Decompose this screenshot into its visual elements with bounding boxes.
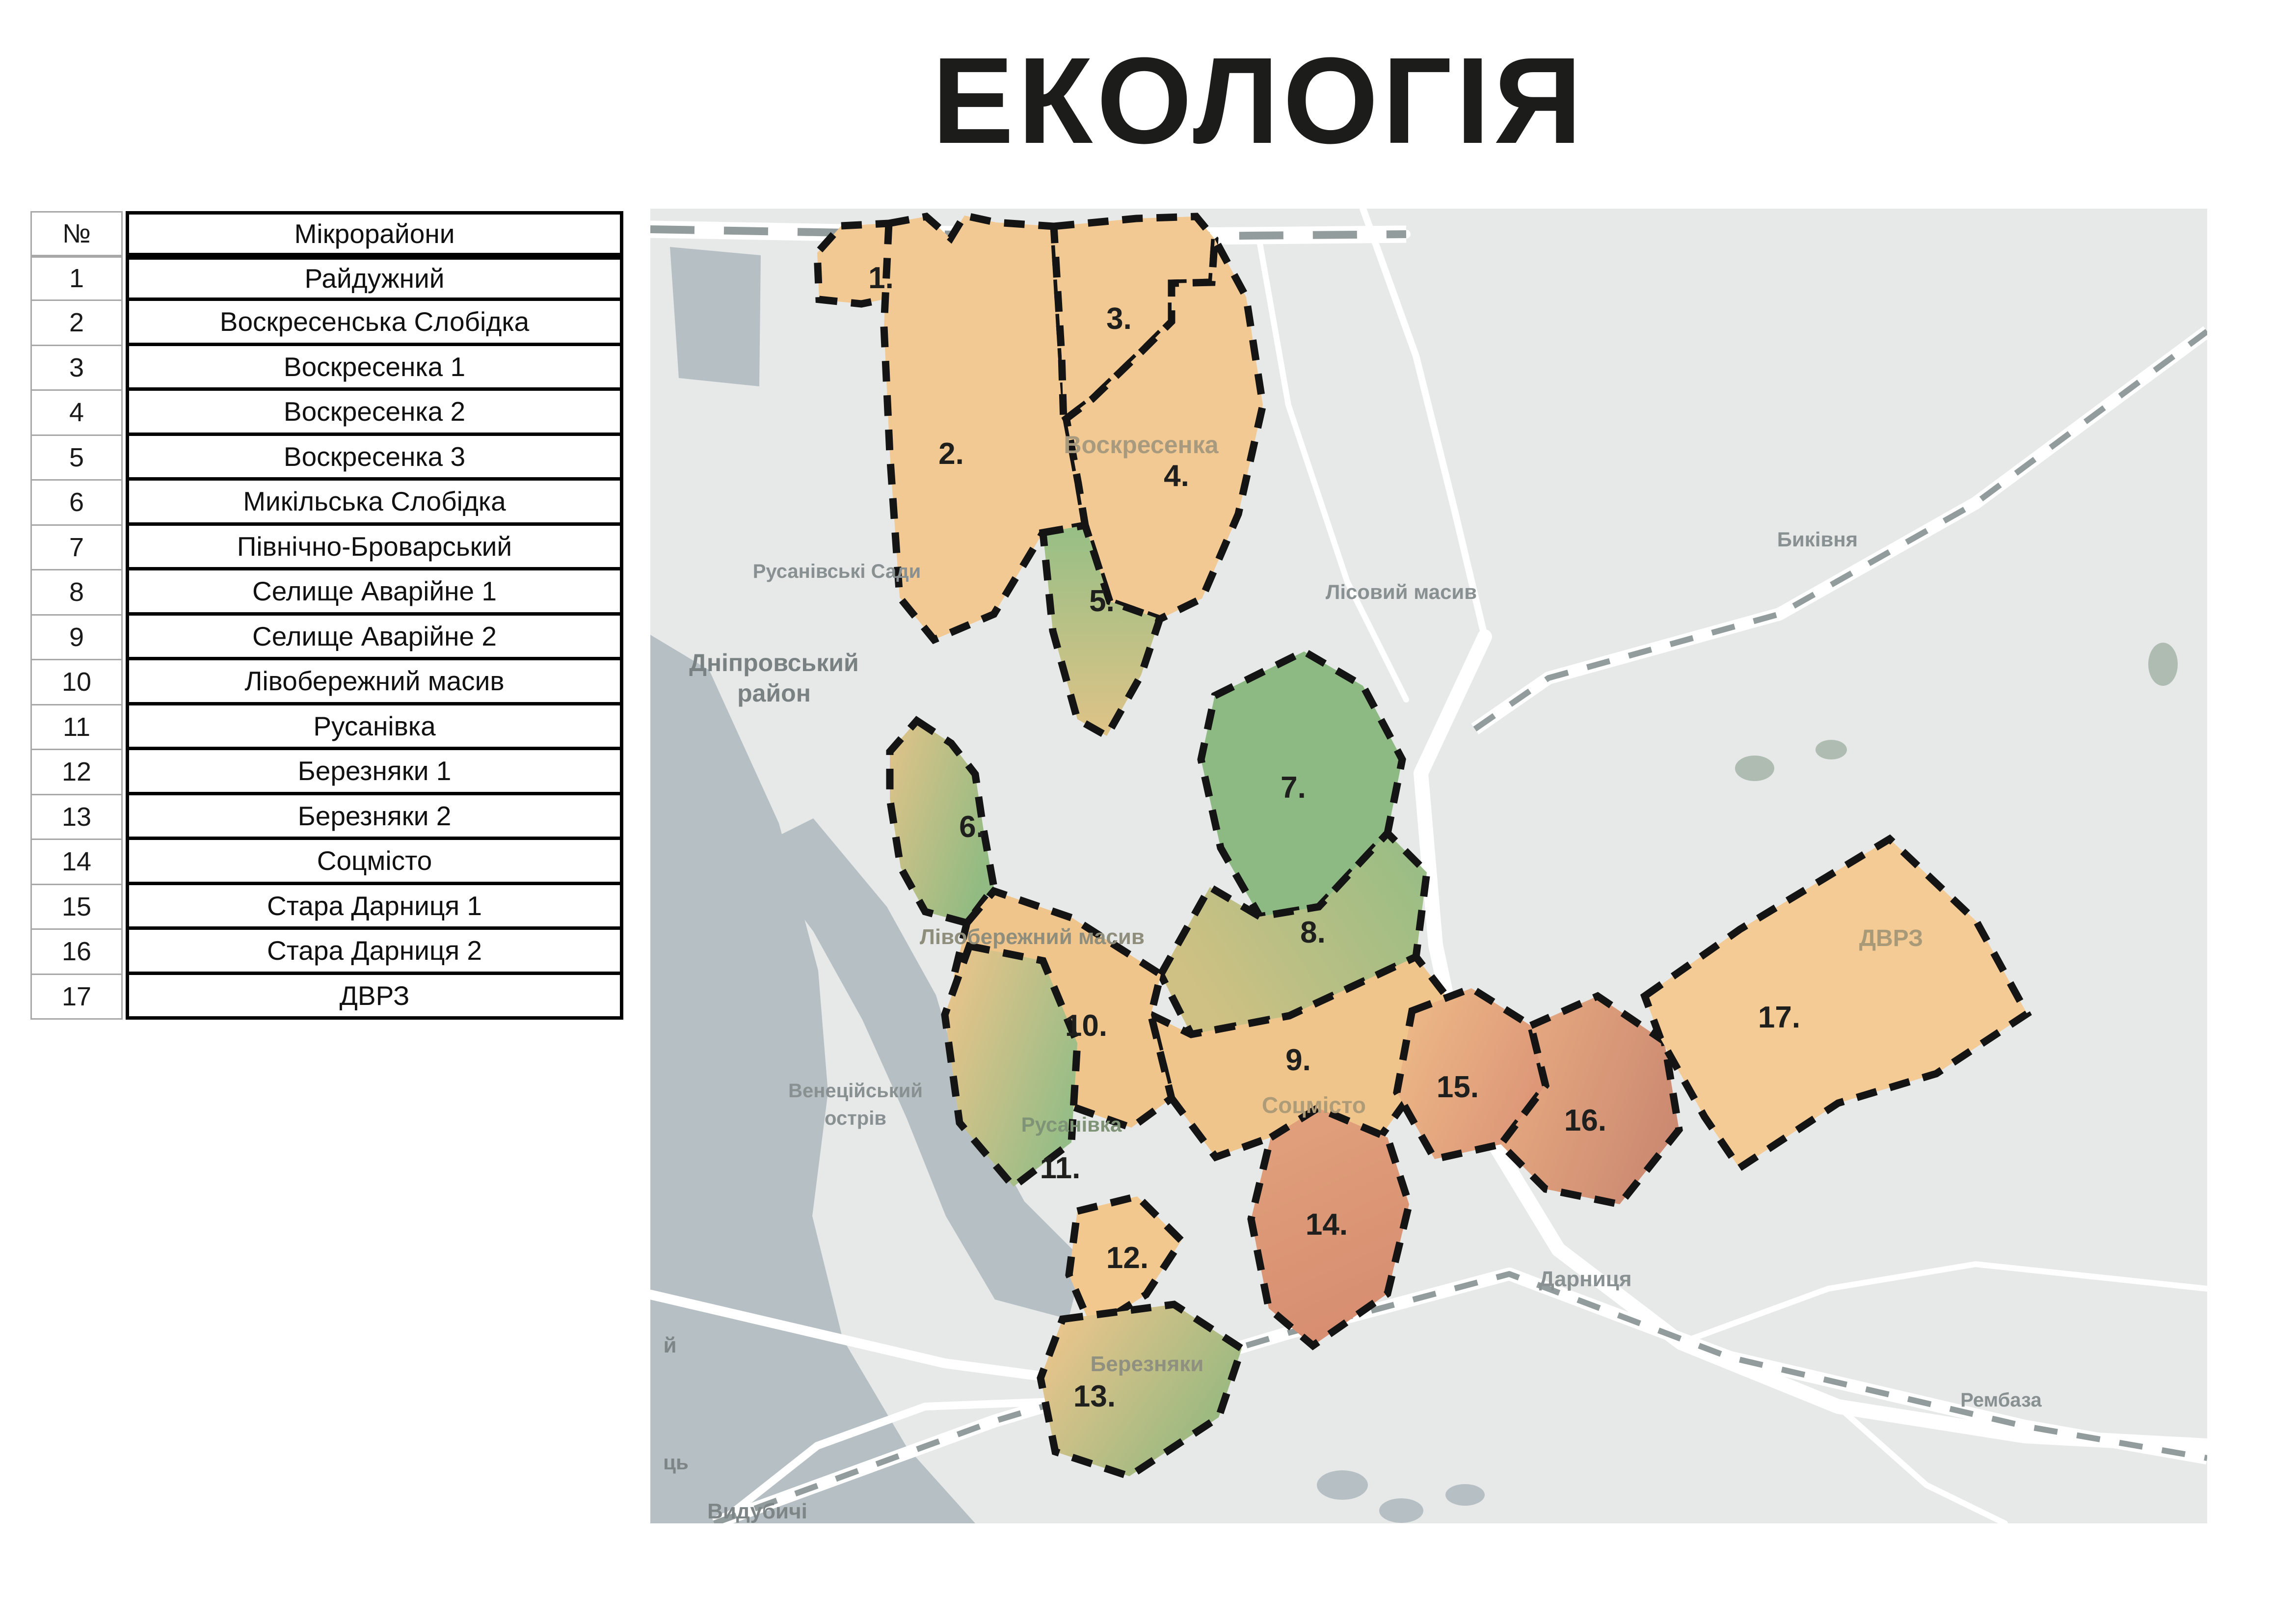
pond [1317,1470,1368,1500]
region-polygon [1645,839,2027,1168]
region-number-label: 9. [1285,1043,1311,1077]
table-row: 14Соцмісто [30,840,623,885]
district-name: Микільська Слобідка [126,477,623,526]
region-number-label: 14. [1306,1208,1348,1242]
map-place-label: Венеційський [788,1080,923,1102]
region-number-label: 3. [1106,302,1132,336]
district-number: 7 [30,524,123,571]
district-number: 15 [30,884,123,930]
map-place-label: Соцмісто [1262,1092,1366,1118]
table-row: 3Воскресенка 1 [30,346,623,391]
map-svg: Русанівські СадиДніпровськийрайонЛісовий… [650,209,2207,1523]
region-number-label: 2. [938,437,964,471]
table-row: 11Русанівка [30,705,623,751]
district-number: 2 [30,299,123,346]
infographic-page: { "title": "ЕКОЛОГІЯ", "table": { "heade… [0,0,2296,1624]
table-row: 1Райдужний [30,256,623,301]
road [1363,209,1485,637]
district-number: 11 [30,704,123,751]
district-name: Березняки 1 [126,747,623,795]
district-name: ДВРЗ [126,972,623,1020]
district-name: Північно-Броварський [126,522,623,571]
map-place-label: Рембаза [1960,1389,2042,1411]
table-rows-container: 1Райдужний2Воскресенська Слобідка3Воскре… [30,256,623,1020]
region-number-label: 6. [959,810,985,844]
map-place-label: Русанівські Сади [753,561,921,582]
table-header-row: № Мікрорайони [30,211,623,256]
map-place-label: Дарниця [1539,1267,1631,1291]
header-number-cell: № [30,211,123,256]
district-name: Воскресенка 3 [126,433,623,481]
table-row: 12Березняки 1 [30,750,623,795]
district-number: 14 [30,839,123,885]
district-number: 1 [30,256,123,301]
district-number: 17 [30,974,123,1020]
district-name: Соцмісто [126,837,623,885]
region-number-label: 12. [1106,1241,1148,1275]
region-number-label: 16. [1564,1104,1606,1137]
table-row: 15Стара Дарниця 1 [30,885,623,930]
park [1735,756,1774,781]
district-name: Воскресенка 1 [126,343,623,391]
map-place-label: район [737,679,811,707]
district-name: Селище Аварійне 1 [126,567,623,616]
region-number-label: 7. [1281,771,1306,805]
map-place-label: Березняки [1091,1352,1204,1376]
district-name: Стара Дарниця 2 [126,926,623,975]
ecology-map: Русанівські СадиДніпровськийрайонЛісовий… [650,209,2207,1523]
district-number: 10 [30,659,123,705]
district-name: Русанівка [126,702,623,751]
region-number-label: 10. [1065,1009,1107,1043]
table-row: 2Воскресенська Слобідка [30,301,623,346]
map-place-label: й [663,1333,676,1357]
district-name: Воскресенка 2 [126,387,623,436]
pond [1445,1484,1485,1506]
park [1815,740,1847,759]
district-name: Селище Аварійне 2 [126,612,623,661]
map-place-label: Воскресенка [1064,431,1219,459]
district-number: 12 [30,749,123,795]
district-number: 5 [30,434,123,481]
district-number: 4 [30,389,123,436]
region-number-label: 5. [1089,584,1115,618]
district-number: 9 [30,614,123,661]
map-place-label: Дніпровський [689,649,859,677]
district-name: Березняки 2 [126,792,623,840]
table-row: 17ДВРЗ [30,975,623,1020]
map-place-label: Русанівка [1021,1113,1122,1136]
district-name: Воскресенська Слобідка [126,298,623,346]
district-number: 13 [30,794,123,840]
district-number: 8 [30,569,123,616]
road [1259,238,1406,700]
region-number-label: 8. [1300,916,1326,949]
districts-table: № Мікрорайони 1Райдужний2Воскресенська С… [30,211,623,1020]
table-row: 6Микільська Слобідка [30,481,623,526]
district-number: 16 [30,928,123,975]
table-row: 5Воскресенка 3 [30,436,623,481]
district-number: 3 [30,345,123,391]
park [2148,643,2178,686]
district-number: 6 [30,479,123,526]
map-place-label: ць [663,1451,689,1474]
pond [1379,1498,1423,1523]
table-row: 4Воскресенка 2 [30,391,623,436]
water-body [670,247,761,386]
road [1681,1264,2207,1343]
header-name-cell: Мікрорайони [126,211,623,256]
district-name: Лівобережний масив [126,657,623,705]
region-number-label: 15. [1437,1070,1479,1104]
region-number-label: 1. [868,261,894,295]
district-name: Стара Дарниця 1 [126,882,623,930]
map-place-label: Лісовий масив [1326,580,1477,603]
table-row: 9Селище Аварійне 2 [30,616,623,661]
map-place-label: Лівобережний масив [920,925,1145,949]
table-row: 16Стара Дарниця 2 [30,930,623,975]
region-number-label: 17. [1758,1001,1800,1034]
region-number-label: 13. [1073,1380,1116,1413]
table-row: 13Березняки 2 [30,795,623,840]
page-title: ЕКОЛОГІЯ [864,29,1654,172]
table-row: 8Селище Аварійне 1 [30,570,623,616]
table-row: 10Лівобережний масив [30,660,623,705]
map-place-label: Биківня [1777,528,1858,551]
map-place-label: ДВРЗ [1859,925,1923,951]
map-place-label: Видубичі [707,1499,807,1523]
region-number-label: 11. [1040,1151,1081,1185]
table-row: 7Північно-Броварський [30,526,623,571]
region-polygon [1041,1304,1242,1476]
map-place-label: острів [825,1108,886,1129]
region-number-label: 4. [1164,459,1189,493]
district-name: Райдужний [126,256,623,301]
